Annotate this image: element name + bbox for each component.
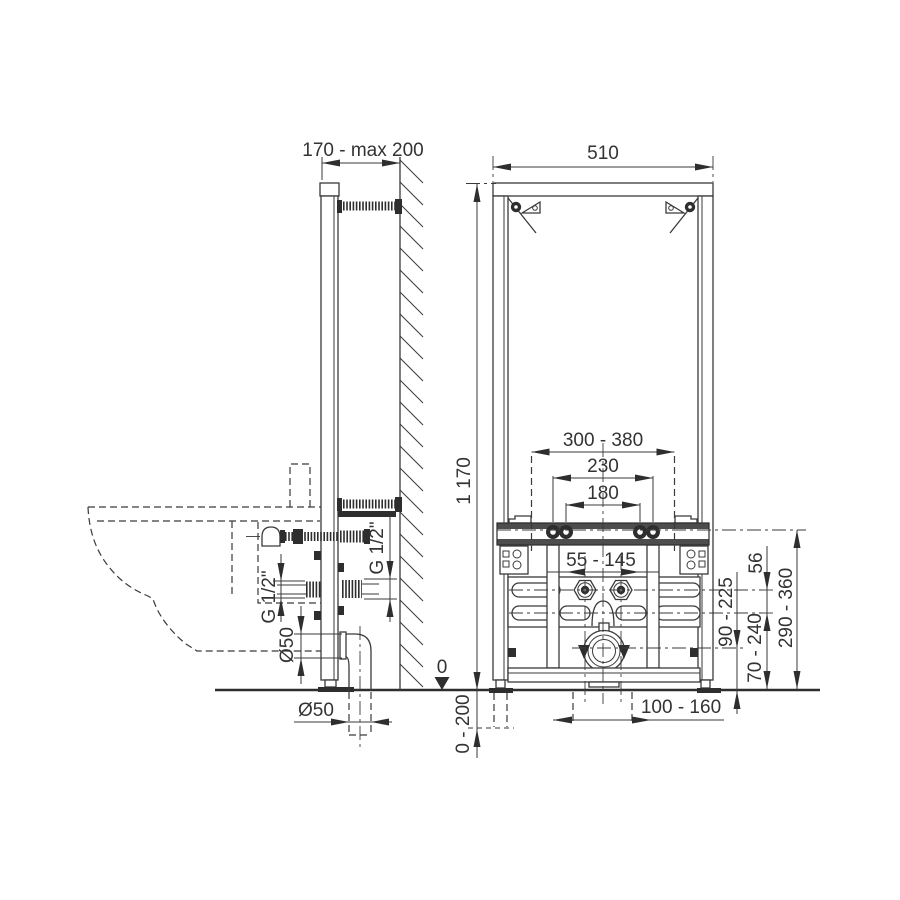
frame-foot-right — [701, 680, 710, 688]
dim-stud-spacing-outer-label: 230 — [587, 456, 619, 477]
dim-thread-front: G 1/2" — [259, 554, 305, 624]
wall-hatching — [400, 160, 423, 687]
dim-wall-distance-label: 170 - max 200 — [302, 140, 423, 161]
dim-waste-outlet-dia: Ø50 — [294, 700, 392, 726]
dim-thread-rear-label: G 1/2" — [367, 521, 388, 574]
dim-thread-front-label: G 1/2" — [259, 570, 280, 623]
dim-frame-width: 510 — [493, 143, 713, 182]
dim-stud-height-range-label: 290 - 360 — [776, 568, 797, 648]
frame-foot-left — [496, 680, 505, 688]
wall-section — [400, 157, 423, 690]
floor-datum-marker: 0 — [435, 657, 450, 690]
side-plate-left — [500, 546, 528, 574]
floor-datum-label: 0 — [437, 657, 448, 678]
side-plate-right — [680, 546, 708, 574]
dim-stud-spacing-inner: 180 — [566, 483, 640, 522]
dim-bracket-height-range-label: 70 - 240 — [745, 613, 766, 683]
dim-frame-height: 1 170 — [454, 184, 496, 759]
dim-fixing-range-label: 300 - 380 — [563, 430, 643, 451]
wall-anchor-top — [337, 199, 402, 214]
anchor-bracket — [338, 511, 396, 517]
drain-assembly — [578, 623, 630, 672]
side-view: 170 - max 200 G 1/2" G 1/2" Ø — [88, 140, 450, 748]
tap-block-outline — [290, 464, 310, 507]
frame-column — [314, 183, 354, 692]
dim-water-conn-range-label: 55 - 145 — [566, 550, 636, 571]
strut-right — [647, 545, 659, 668]
dim-frame-height-label: 1 170 — [454, 457, 475, 505]
dim-fixing-range: 300 - 380 — [532, 430, 675, 456]
dim-waste-lateral-range: 100 - 160 — [553, 697, 724, 724]
dim-frame-width-label: 510 — [587, 143, 619, 164]
slotted-plate — [508, 577, 700, 627]
dim-water-conn-offset-label: 56 — [746, 552, 767, 573]
strut-left — [547, 545, 559, 668]
bidet-outline — [88, 464, 322, 651]
dim-thread-rear: G 1/2" — [364, 516, 397, 622]
water-fitting-front — [277, 585, 322, 594]
dim-stud-height-range: 290 - 360 — [776, 530, 800, 689]
dim-water-conn-range: 55 - 145 — [547, 550, 659, 576]
frame-foot — [325, 680, 336, 687]
water-fitting-rear — [342, 584, 379, 594]
dim-waste-height-range-label: 90 - 225 — [716, 577, 737, 647]
wall-anchor-bottom — [337, 497, 402, 517]
mounting-stud — [246, 527, 370, 546]
dim-leg-adjustment: 0 - 200 — [453, 694, 514, 753]
dim-waste-lateral-range-label: 100 - 160 — [641, 697, 721, 718]
dim-waste-outlet-dia-label: Ø50 — [298, 700, 334, 721]
installation-frame-drawing: 170 - max 200 G 1/2" G 1/2" Ø — [0, 0, 900, 900]
corner-brace-right — [666, 198, 698, 233]
dim-stud-spacing-inner-label: 180 — [587, 483, 619, 504]
technical-drawing-page: 170 - max 200 G 1/2" G 1/2" Ø — [0, 0, 900, 900]
dim-waste-pipe-dia-label: Ø50 — [277, 627, 298, 663]
dim-wall-distance: 170 - max 200 — [302, 140, 423, 180]
corner-brace-left — [508, 198, 540, 233]
front-view: 510 1 170 0 - 200 300 - 380 — [453, 143, 806, 758]
dim-leg-adjustment-label: 0 - 200 — [453, 694, 474, 753]
